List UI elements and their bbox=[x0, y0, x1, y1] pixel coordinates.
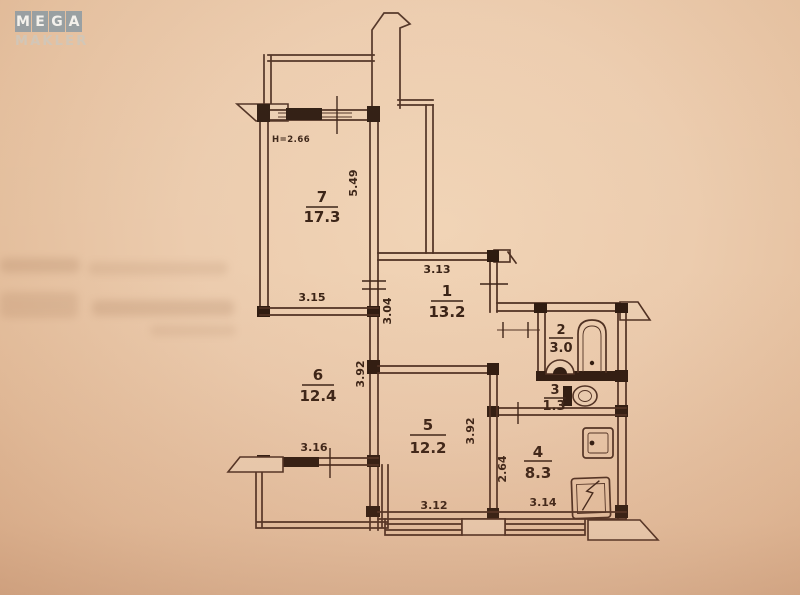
room5-label: 5 12.2 bbox=[409, 416, 446, 457]
washbasin-icon bbox=[546, 360, 574, 374]
room-area: 12.2 bbox=[409, 439, 446, 457]
dim-room6-width: 3.16 bbox=[300, 441, 327, 454]
right-block-walls bbox=[487, 302, 650, 535]
balcony-bottom bbox=[228, 457, 388, 528]
dim-room1-side: 3.04 bbox=[381, 297, 394, 324]
room-number: 4 bbox=[533, 443, 543, 461]
dim-kitchen-width: 3.14 bbox=[529, 496, 556, 509]
dim-room6-side: 3.92 bbox=[354, 360, 367, 387]
eave-bottom-right bbox=[588, 520, 658, 540]
window-unit-room7 bbox=[286, 108, 322, 120]
bathtub-icon bbox=[578, 320, 606, 372]
room2-label: 2 3.0 bbox=[549, 323, 573, 356]
balcony-awning-bottom bbox=[228, 457, 283, 472]
room1-label: 1 13.2 bbox=[428, 282, 465, 321]
window-unit-room6 bbox=[283, 457, 319, 467]
room-number: 5 bbox=[423, 416, 433, 434]
listing-photo: M E G A MAKLER bbox=[0, 0, 800, 595]
room-area: 1.3 bbox=[542, 399, 565, 414]
kitchen-sink-icon bbox=[583, 428, 613, 458]
room-number: 2 bbox=[556, 323, 565, 338]
dim-room7-width: 3.15 bbox=[298, 291, 325, 304]
room4-label: 4 8.3 bbox=[524, 443, 552, 482]
room-area: 13.2 bbox=[428, 303, 465, 321]
room6-label: 6 12.4 bbox=[299, 366, 336, 405]
room-area: 12.4 bbox=[299, 387, 336, 405]
room-area: 17.3 bbox=[303, 208, 340, 226]
dim-kitchen-side: 2.64 bbox=[496, 455, 509, 482]
room-number: 1 bbox=[442, 282, 452, 300]
room-area: 3.0 bbox=[549, 341, 572, 356]
dim-room7-side: 5.49 bbox=[347, 169, 360, 196]
room-number: 6 bbox=[313, 366, 323, 384]
vent-duct bbox=[372, 13, 433, 253]
floor-plan: H=2.66 7 17.3 1 13.2 6 12.4 5 12.2 2 3.0 bbox=[0, 0, 800, 595]
window-pier bbox=[462, 519, 505, 535]
room-area: 8.3 bbox=[525, 464, 552, 482]
room-number: 7 bbox=[317, 188, 327, 206]
toilet-icon bbox=[563, 386, 597, 406]
ceiling-height-label: H=2.66 bbox=[272, 135, 310, 145]
room-number: 3 bbox=[550, 383, 559, 398]
room3-label: 3 1.3 bbox=[542, 383, 566, 414]
dim-room1-width: 3.13 bbox=[423, 263, 450, 276]
dim-room5-side: 3.92 bbox=[464, 417, 477, 444]
room7-label: 7 17.3 bbox=[303, 188, 340, 226]
dim-room5-width: 3.12 bbox=[420, 499, 447, 512]
